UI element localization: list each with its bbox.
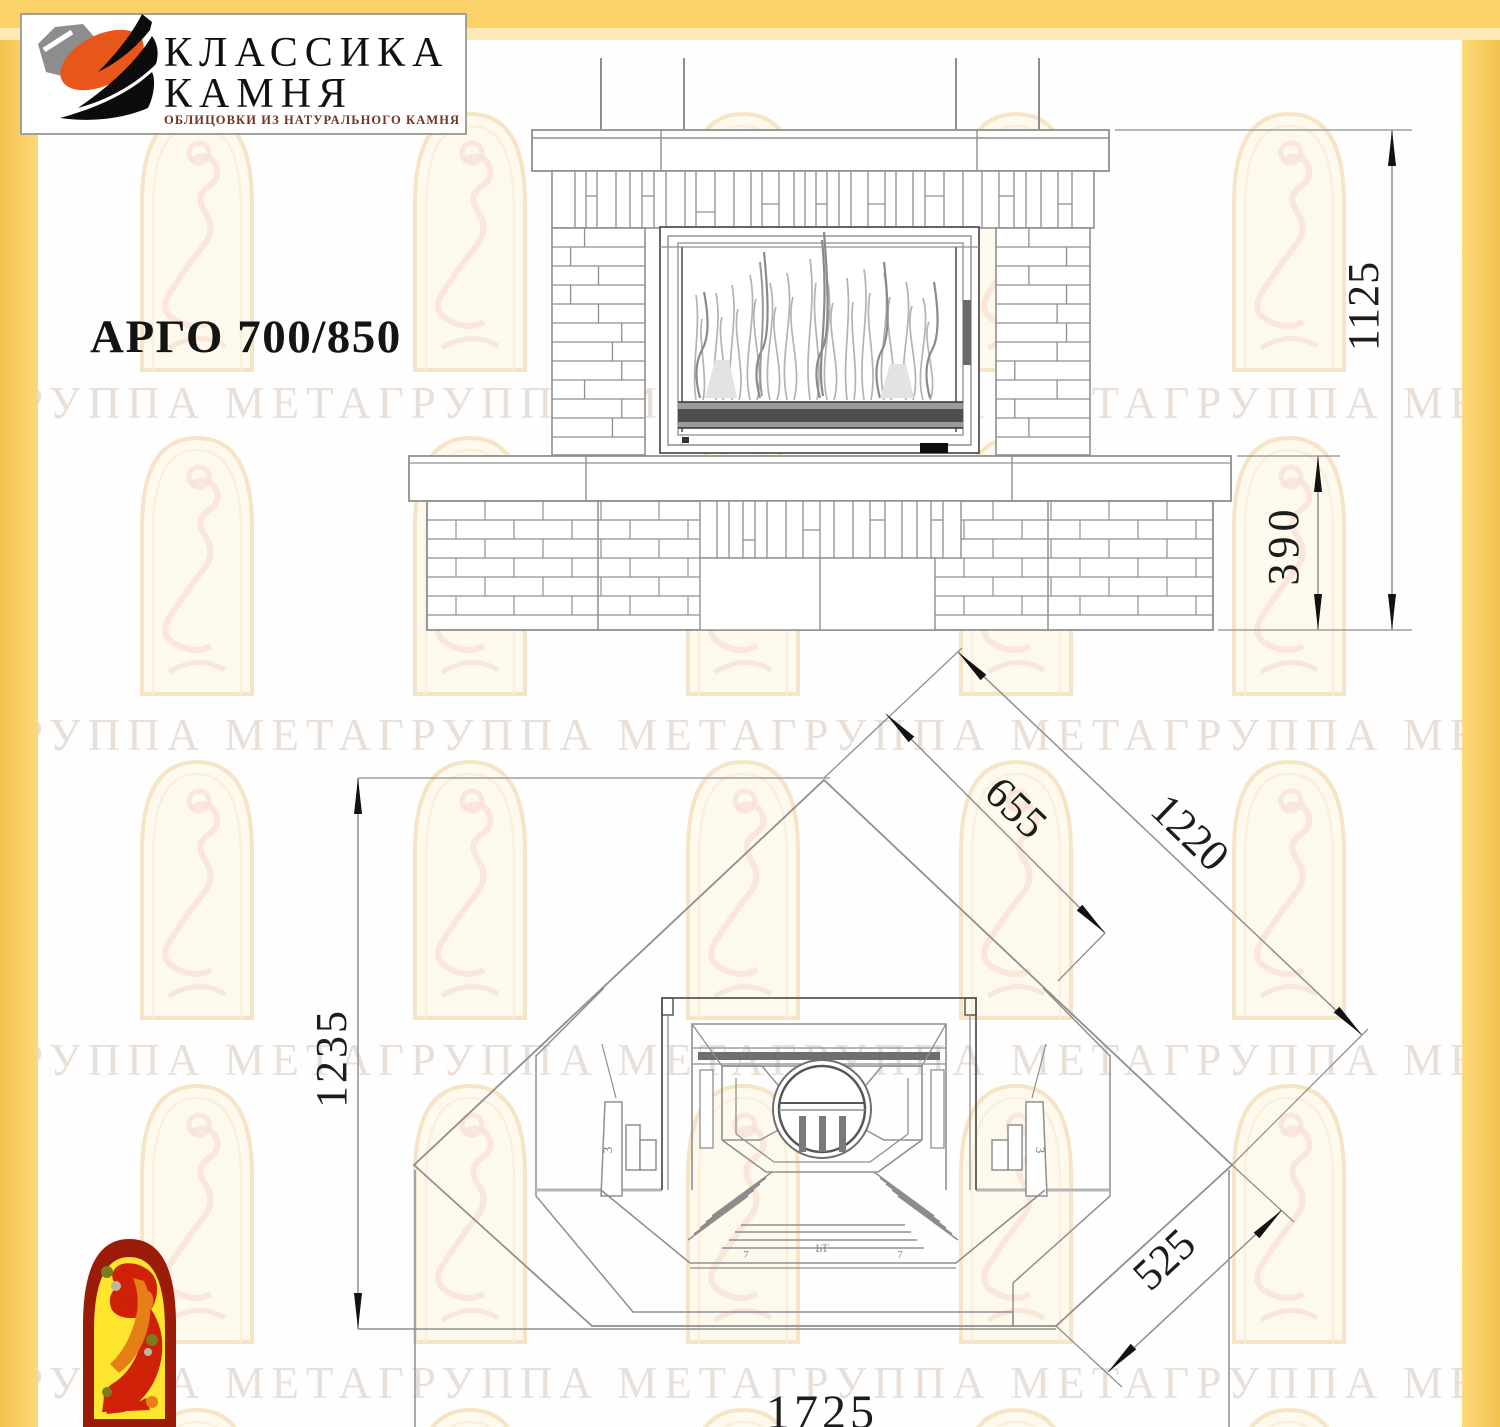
svg-text:ГРУППА МЕТАГРУППА МЕТАГРУППА М: ГРУППА МЕТАГРУППА МЕТАГРУППА МЕТАГРУППА … — [0, 710, 1500, 760]
svg-text:ГРУППА МЕТАГРУППА МЕТАГРУППА М: ГРУППА МЕТАГРУППА МЕТАГРУППА МЕТАГРУППА … — [0, 1358, 1500, 1408]
svg-text:КЛАССИКА: КЛАССИКА — [164, 30, 449, 76]
svg-text:7: 7 — [897, 1249, 903, 1261]
svg-text:ЬТ: ЬТ — [815, 1241, 829, 1255]
svg-text:1125: 1125 — [1339, 261, 1388, 351]
svg-text:3: 3 — [1033, 1147, 1048, 1154]
svg-text:3: 3 — [600, 1147, 615, 1154]
svg-text:ОБЛИЦОВКИ ИЗ НАТУРАЛЬНОГО КАМН: ОБЛИЦОВКИ ИЗ НАТУРАЛЬНОГО КАМНЯ — [164, 113, 460, 127]
svg-text:АРГО 700/850: АРГО 700/850 — [90, 311, 402, 363]
svg-text:КАМНЯ: КАМНЯ — [164, 71, 353, 117]
svg-text:390: 390 — [1259, 505, 1308, 586]
svg-text:7: 7 — [743, 1249, 749, 1261]
svg-text:1235: 1235 — [307, 1008, 356, 1108]
svg-text:1725: 1725 — [766, 1386, 878, 1427]
